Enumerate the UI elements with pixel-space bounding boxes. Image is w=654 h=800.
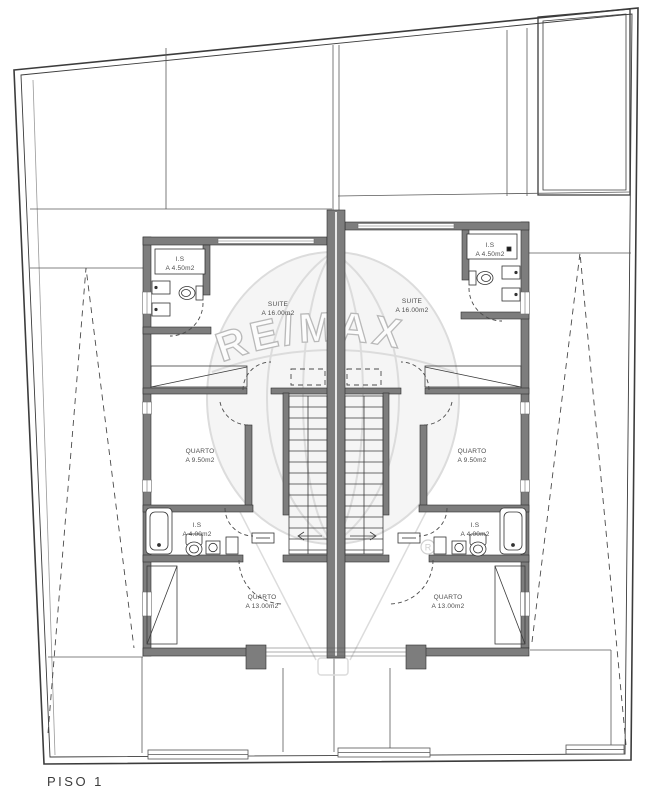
door-arc bbox=[389, 560, 433, 604]
hall-cabinet-icon bbox=[252, 533, 274, 543]
room-area: A 4.50m2 bbox=[165, 265, 194, 272]
sink-icon bbox=[452, 541, 466, 554]
room-label: QUARTO bbox=[248, 594, 277, 601]
room-area: A 4.00m2 bbox=[460, 531, 489, 538]
bathtub-icon bbox=[146, 508, 172, 554]
room-area: A 16.00m2 bbox=[262, 310, 295, 317]
column-marker bbox=[507, 247, 511, 251]
bathtub-icon bbox=[500, 508, 526, 554]
room-area: A 16.00m2 bbox=[396, 307, 429, 314]
registered-mark-icon: R bbox=[421, 540, 435, 554]
svg-text:R: R bbox=[425, 543, 432, 553]
room-label: QUARTO bbox=[434, 594, 463, 601]
room-label: QUARTO bbox=[186, 448, 215, 455]
radiator-icon bbox=[502, 288, 520, 301]
floor-plan-page: RE/MAX R bbox=[0, 0, 654, 800]
room-area: A 13.00m2 bbox=[246, 603, 279, 610]
floor-plan-drawing: RE/MAX R bbox=[0, 0, 654, 800]
annex-outline bbox=[538, 9, 630, 195]
room-area: A 13.00m2 bbox=[432, 603, 465, 610]
room-label: I.S bbox=[193, 522, 202, 529]
room-area: A 4.00m2 bbox=[182, 531, 211, 538]
room-label: SUITE bbox=[268, 301, 289, 308]
hall-cabinet-icon bbox=[398, 533, 420, 543]
cabinet-icon bbox=[226, 537, 238, 554]
radiator-icon bbox=[152, 303, 170, 316]
room-area: A 9.50m2 bbox=[457, 457, 486, 464]
room-label: I.S bbox=[486, 242, 495, 249]
toilet-icon bbox=[179, 286, 203, 300]
sink-icon bbox=[206, 541, 220, 554]
room-area: A 4.50m2 bbox=[475, 251, 504, 258]
room-label: I.S bbox=[176, 256, 185, 263]
room-label: SUITE bbox=[402, 298, 423, 305]
cabinet-icon bbox=[434, 537, 446, 554]
room-label: I.S bbox=[471, 522, 480, 529]
radiator-icon bbox=[152, 281, 170, 294]
room-label: QUARTO bbox=[458, 448, 487, 455]
toilet-icon bbox=[469, 271, 493, 285]
floor-label: PISO 1 bbox=[47, 774, 104, 789]
radiator-icon bbox=[502, 266, 520, 279]
room-area: A 9.50m2 bbox=[185, 457, 214, 464]
bottom-boundary-windows bbox=[148, 745, 624, 759]
